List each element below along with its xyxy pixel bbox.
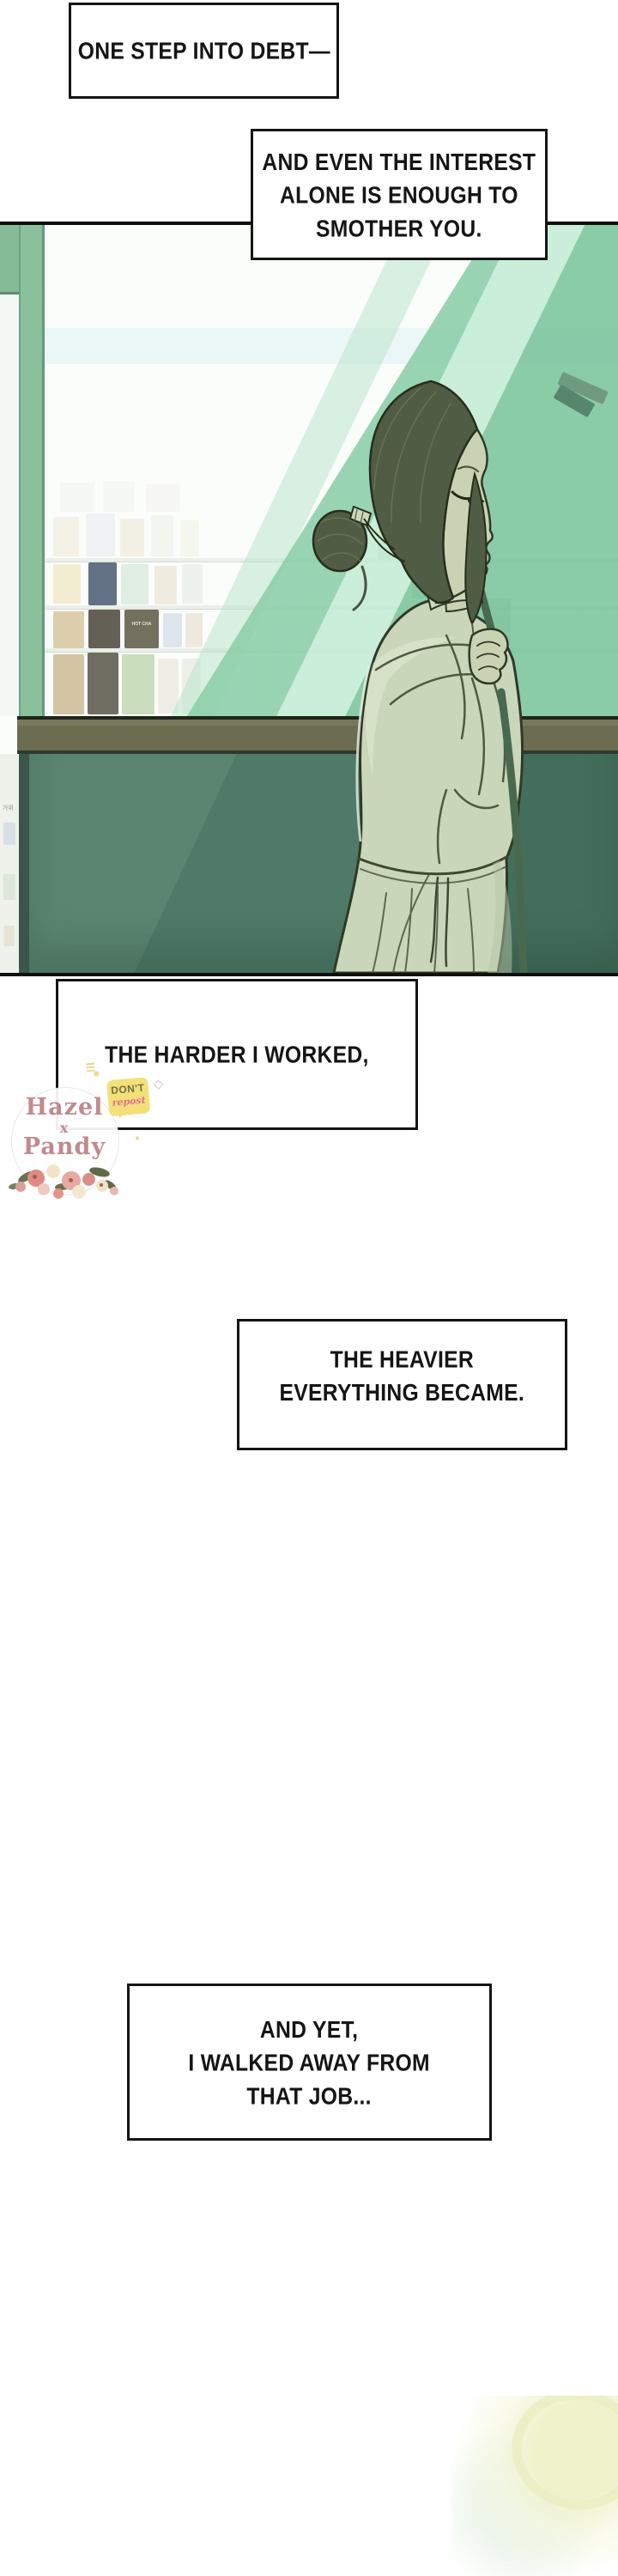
shelf-product-cup bbox=[88, 610, 120, 648]
dont-repost-badge: DON'T repost bbox=[106, 1072, 156, 1128]
under-counter-display: 가위 bbox=[0, 754, 19, 973]
sparkle-dot bbox=[136, 1136, 139, 1139]
flower-icon bbox=[110, 1187, 118, 1195]
shelf-product bbox=[146, 484, 180, 512]
watermark-title: Pandy bbox=[7, 1133, 122, 1160]
sparkle-dot bbox=[94, 1071, 100, 1077]
under-counter-label: 가위 bbox=[3, 804, 14, 812]
window-frame-lower bbox=[19, 754, 29, 973]
shelf-product bbox=[120, 519, 144, 556]
comic-panel: HOT CHA 가위 bbox=[0, 222, 618, 976]
shelf-product bbox=[3, 823, 15, 845]
narration-box-5: AND YET, I WALKED AWAY FROM THAT JOB... bbox=[127, 1984, 492, 2141]
flower-icon bbox=[38, 1183, 50, 1195]
flower-icon bbox=[72, 1185, 86, 1199]
webtoon-page: HOT CHA 가위 bbox=[0, 0, 618, 2576]
shelf-product-cup: HOT CHA bbox=[124, 610, 159, 648]
flower-center-dot bbox=[69, 1178, 73, 1182]
next-panel-hint bbox=[451, 2396, 618, 2576]
flower-center-dot bbox=[100, 1183, 103, 1187]
narration-text: THE HARDER I WORKED, bbox=[105, 1038, 369, 1072]
shelf-product bbox=[60, 483, 94, 512]
flower-icon bbox=[53, 1188, 64, 1199]
flower-garland bbox=[7, 1157, 136, 1209]
shelf-product bbox=[86, 513, 115, 556]
cup-label: HOT CHA bbox=[126, 622, 157, 627]
shelf-product bbox=[53, 564, 81, 604]
shelf-product-cup bbox=[88, 653, 118, 714]
narration-text: ONE STEP INTO DEBT— bbox=[77, 34, 330, 68]
shelf-product bbox=[53, 517, 79, 556]
flower-icon bbox=[82, 1173, 95, 1186]
shelf-product bbox=[3, 874, 15, 900]
shelf-product bbox=[180, 520, 199, 556]
narration-box-1: ONE STEP INTO DEBT— bbox=[69, 3, 339, 99]
shelf-product bbox=[185, 613, 203, 647]
woman-character bbox=[309, 378, 618, 973]
narration-text: SMOTHER YOU. bbox=[263, 211, 536, 245]
narration-text: AND YET, bbox=[189, 2012, 430, 2045]
shelf-product-cup bbox=[53, 611, 84, 648]
shelf-product-cup bbox=[122, 654, 154, 714]
window-frame-corner bbox=[0, 225, 19, 295]
window-frame-post bbox=[19, 225, 45, 750]
narration-text: THE HEAVIER bbox=[280, 1342, 525, 1376]
flower-icon bbox=[15, 1182, 26, 1192]
narration-text: ALONE IS ENOUGH TO bbox=[263, 178, 536, 211]
watermark-title: Hazel bbox=[7, 1094, 122, 1121]
shelf-product bbox=[4, 926, 15, 946]
window-glass-left bbox=[0, 295, 19, 716]
narration-text: EVERYTHING BECAME. bbox=[280, 1376, 525, 1409]
shelf-product bbox=[121, 564, 148, 605]
narration-text: AND EVEN THE INTEREST bbox=[263, 144, 536, 178]
flower-center-dot bbox=[33, 1175, 37, 1179]
shelf-product-cup bbox=[53, 654, 84, 714]
narration-box-2: AND EVEN THE INTEREST ALONE IS ENOUGH TO… bbox=[251, 129, 548, 260]
shelf-product bbox=[151, 515, 173, 556]
narration-text: THAT JOB... bbox=[189, 2079, 430, 2112]
narration-box-4: THE HEAVIER EVERYTHING BECAME. bbox=[237, 1319, 567, 1450]
shelf-product bbox=[103, 481, 134, 512]
watermark-group: Hazel x Pandy DON'T repost bbox=[7, 1072, 161, 1218]
narration-text: I WALKED AWAY FROM bbox=[189, 2045, 430, 2079]
flower-icon bbox=[46, 1164, 60, 1178]
shelf-product bbox=[88, 562, 117, 605]
shelf-product bbox=[163, 613, 182, 647]
shelf-product bbox=[158, 659, 179, 714]
shelf-product bbox=[154, 566, 177, 605]
shelf-product bbox=[182, 564, 203, 604]
